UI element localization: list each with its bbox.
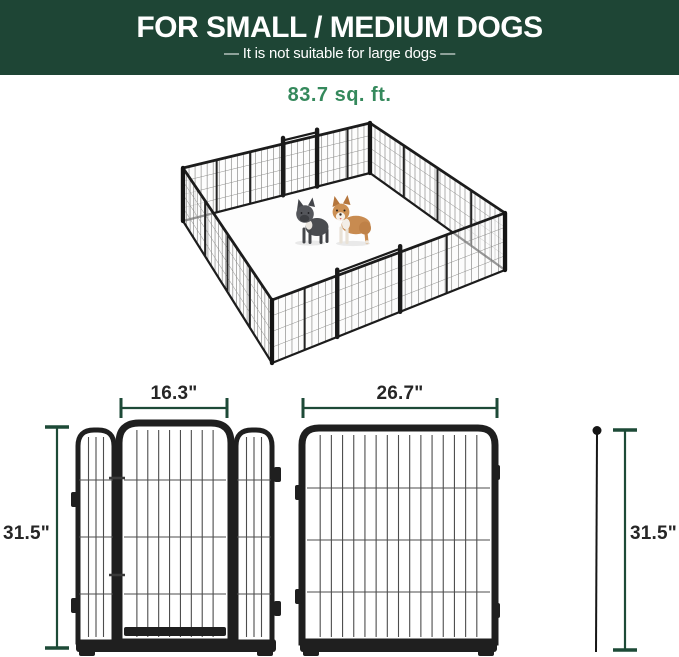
panel-height-dimension-label-right: 31.5"	[630, 523, 679, 545]
dimension-diagrams	[0, 385, 679, 657]
panel-width-dimension-label: 26.7"	[348, 383, 452, 405]
playpen-illustration	[120, 113, 580, 387]
pen-area-label: 83.7 sq. ft.	[0, 84, 679, 107]
banner-title: FOR SMALL / MEDIUM DOGS	[0, 11, 679, 44]
panel-height-dimension-label-left: 31.5"	[0, 523, 50, 545]
banner: FOR SMALL / MEDIUM DOGS — It is not suit…	[0, 0, 679, 75]
product-infographic: FOR SMALL / MEDIUM DOGS — It is not suit…	[0, 0, 679, 657]
banner-subtitle: — It is not suitable for large dogs —	[0, 45, 679, 63]
door-width-dimension-label: 16.3"	[122, 383, 226, 405]
ground-stake-icon	[593, 426, 602, 652]
